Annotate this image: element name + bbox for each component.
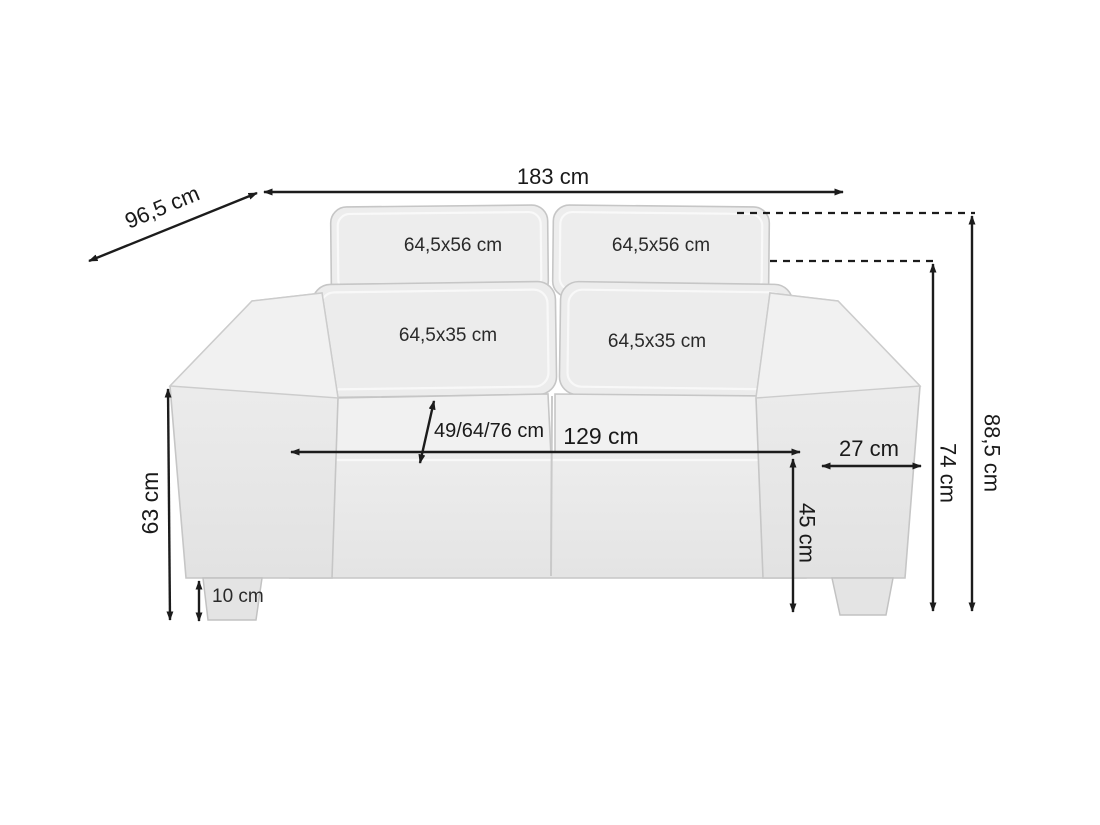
left-armrest [170,293,338,578]
sofa-dimension-diagram-page: 183 cm 96,5 cm 64,5x56 cm 64,5x56 cm 64,… [0,0,1100,825]
sofa-dimension-diagram: 183 cm 96,5 cm 64,5x56 cm 64,5x56 cm 64,… [0,0,1100,825]
back-cushion-left-label: 64,5x56 cm [404,235,502,256]
seat-depth-label: 49/64/76 cm [434,420,544,442]
center-seam [551,396,552,576]
right-leg [832,578,893,615]
seat-height-label: 45 cm [795,503,820,563]
lumbar-cushion-right-label: 64,5x35 cm [608,331,706,352]
arm-outer-height-label: 63 cm [137,472,163,535]
seat-width-label: 129 cm [563,423,638,449]
armrest-height-label: 74 cm [936,443,961,503]
arm-outer-height-arrow [168,389,170,620]
overall-height-label: 88,5 cm [980,414,1005,492]
overall-width-label: 183 cm [517,164,589,189]
back-cushion-right-label: 64,5x56 cm [612,235,710,256]
armrest-width-label: 27 cm [839,436,899,461]
lumbar-cushion-left-label: 64,5x35 cm [399,325,497,346]
leg-height-label: 10 cm [212,586,264,607]
overall-depth-label: 96,5 cm [121,181,203,234]
